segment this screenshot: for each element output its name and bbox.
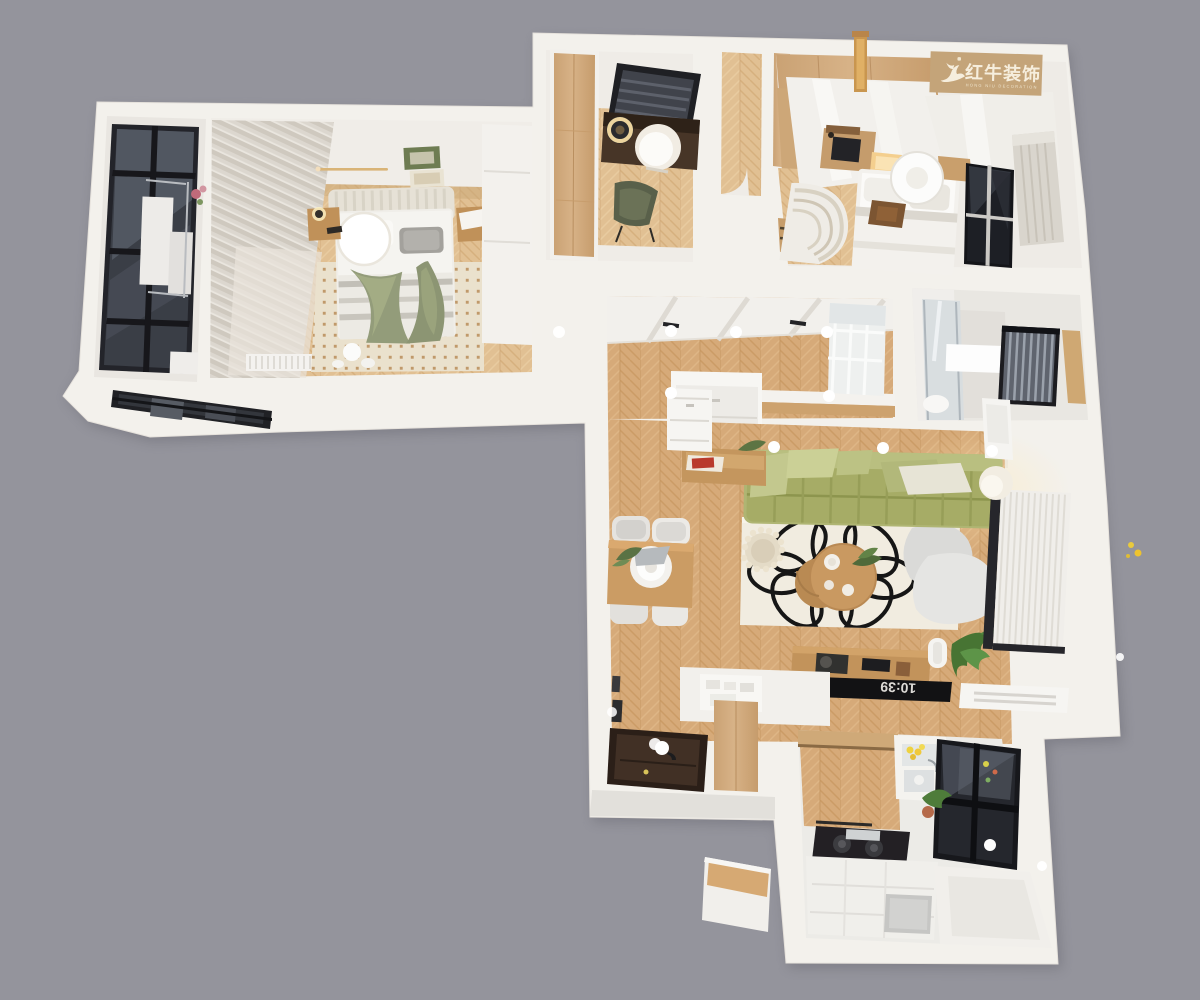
- svg-text:10:39: 10:39: [880, 679, 917, 697]
- svg-text:红牛装饰: 红牛装饰: [965, 61, 1042, 84]
